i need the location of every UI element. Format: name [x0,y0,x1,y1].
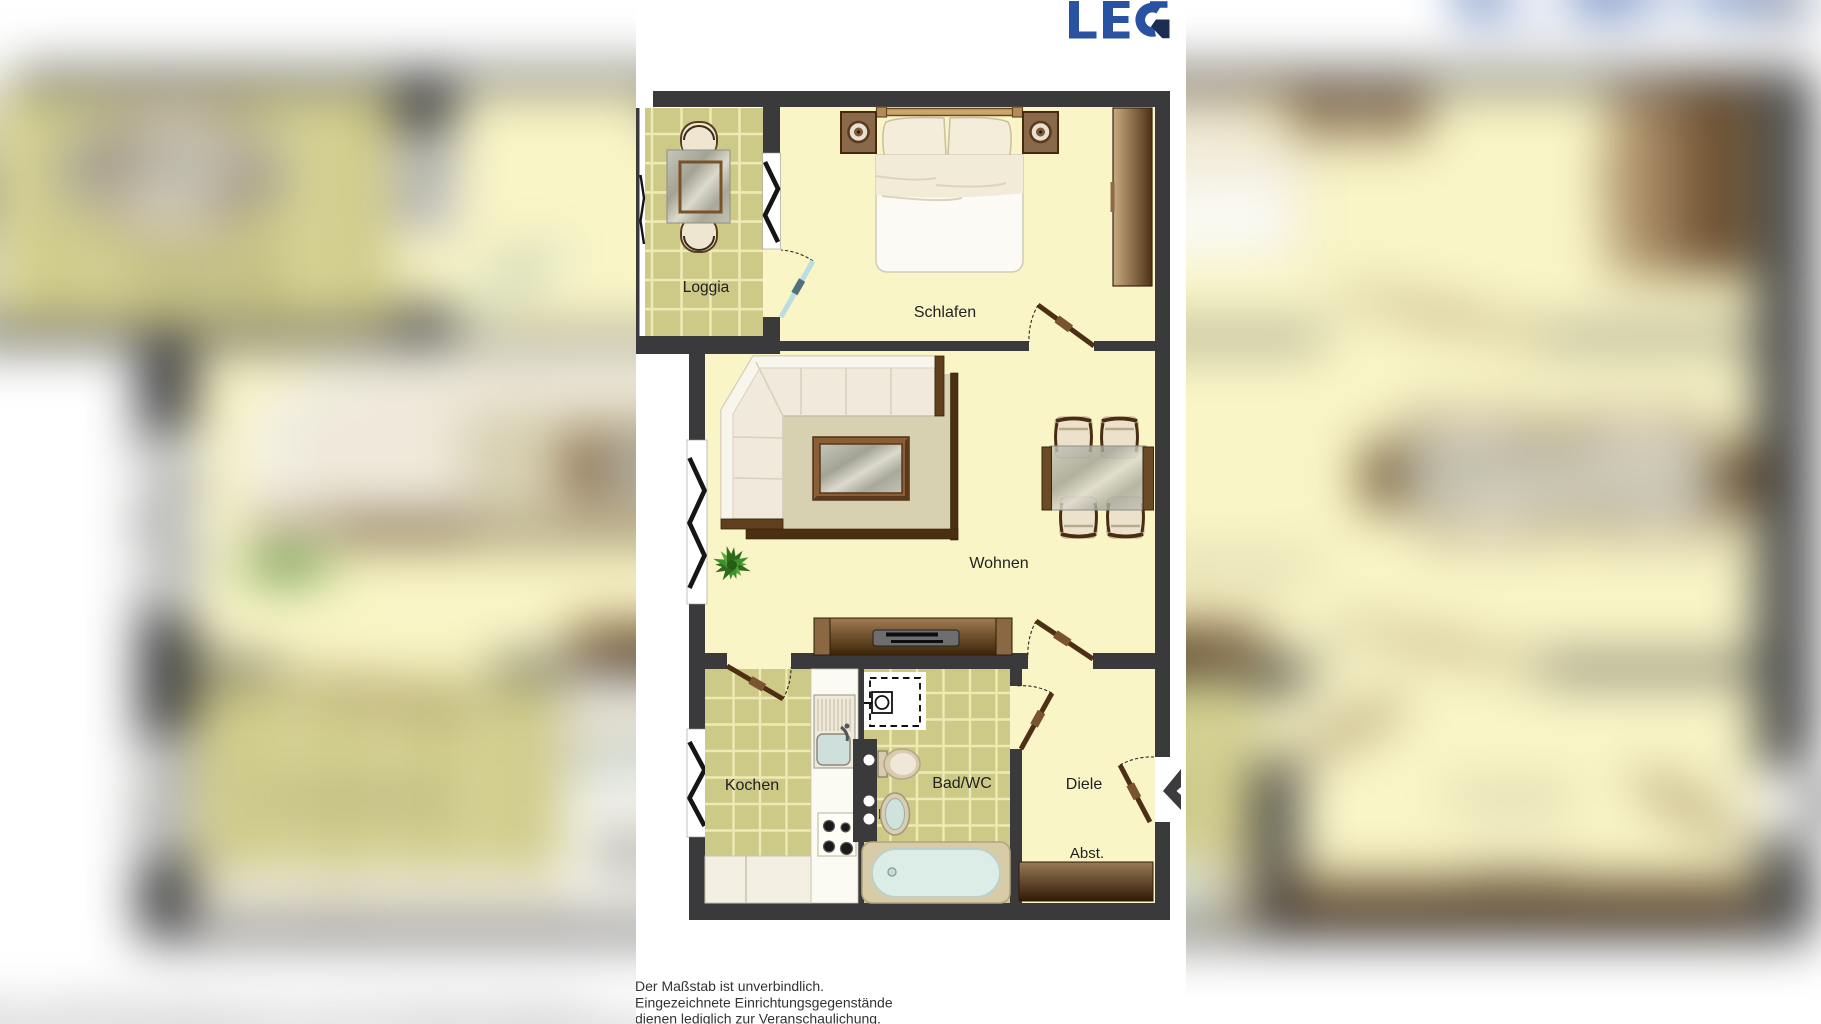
svg-text:Kochen: Kochen [725,777,779,794]
svg-text:Eingezeichnete Einrichtungsgeg: Eingezeichnete Einrichtungsgegenstände [636,995,893,1011]
svg-text:Schlafen: Schlafen [914,304,976,321]
svg-text:Kochen: Kochen [263,789,452,808]
svg-text:Diele: Diele [1066,776,1103,793]
svg-text:Wohnen: Wohnen [969,555,1028,572]
svg-text:Bad/WC: Bad/WC [932,775,992,792]
svg-text:Der Maßstab ist unverbindlich.: Der Maßstab ist unverbindlich. [0,1001,608,1018]
svg-text:dienen lediglich zur Veranscha: dienen lediglich zur Veranschaulichung. [636,1011,881,1024]
svg-text:Abst.: Abst. [1070,845,1104,862]
svg-text:Abst.: Abst. [1463,861,1582,879]
svg-text:Loggia: Loggia [683,279,730,296]
svg-text:Diele: Diele [1449,788,1576,807]
svg-text:Der Maßstab ist unverbindlich.: Der Maßstab ist unverbindlich. [636,978,824,994]
svg-text:Loggia: Loggia [117,267,280,285]
